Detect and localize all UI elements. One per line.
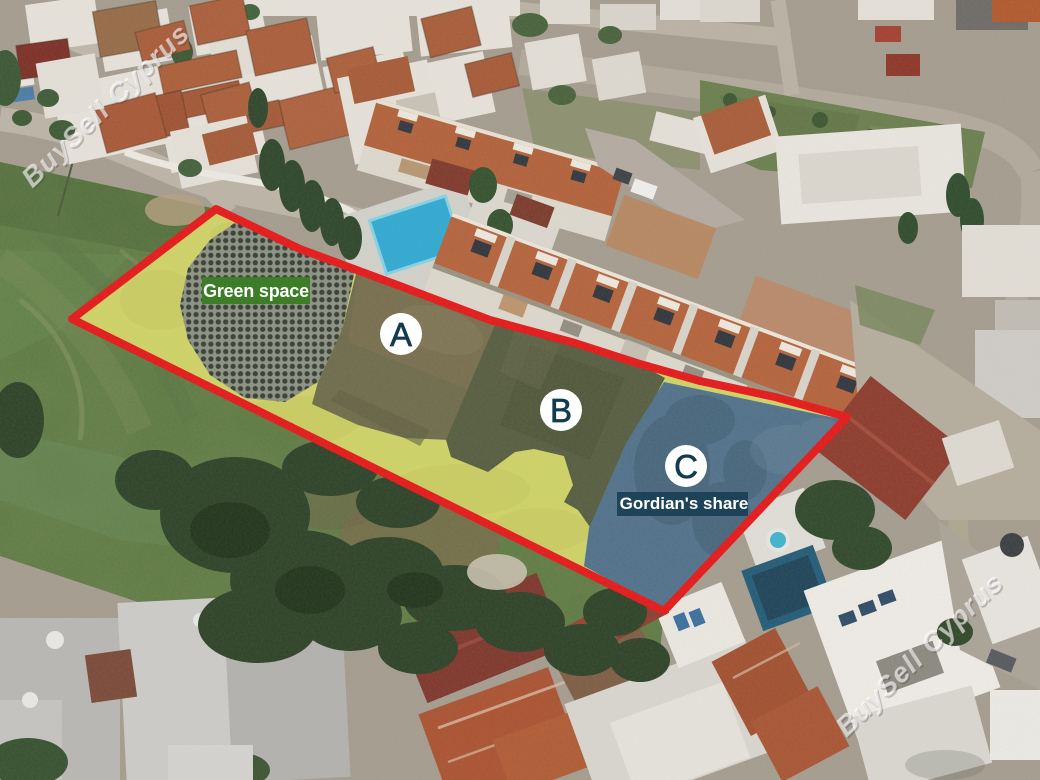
svg-text:A: A (390, 316, 412, 353)
svg-text:Green space: Green space (203, 281, 309, 301)
svg-text:Gordian's share: Gordian's share (620, 494, 749, 513)
svg-text:B: B (550, 392, 572, 429)
svg-text:C: C (674, 448, 698, 485)
